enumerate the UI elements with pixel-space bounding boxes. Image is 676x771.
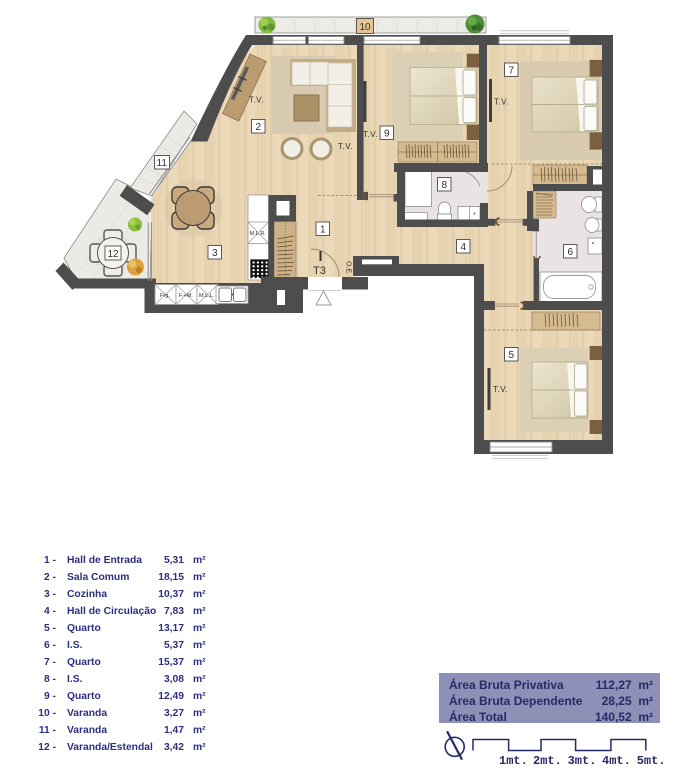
svg-text:3mt.: 3mt. <box>568 754 597 768</box>
svg-text:5mt.: 5mt. <box>637 754 666 768</box>
svg-text:2mt.: 2mt. <box>533 754 562 768</box>
svg-text:4mt.: 4mt. <box>602 754 631 768</box>
svg-text:1mt.: 1mt. <box>499 754 528 768</box>
